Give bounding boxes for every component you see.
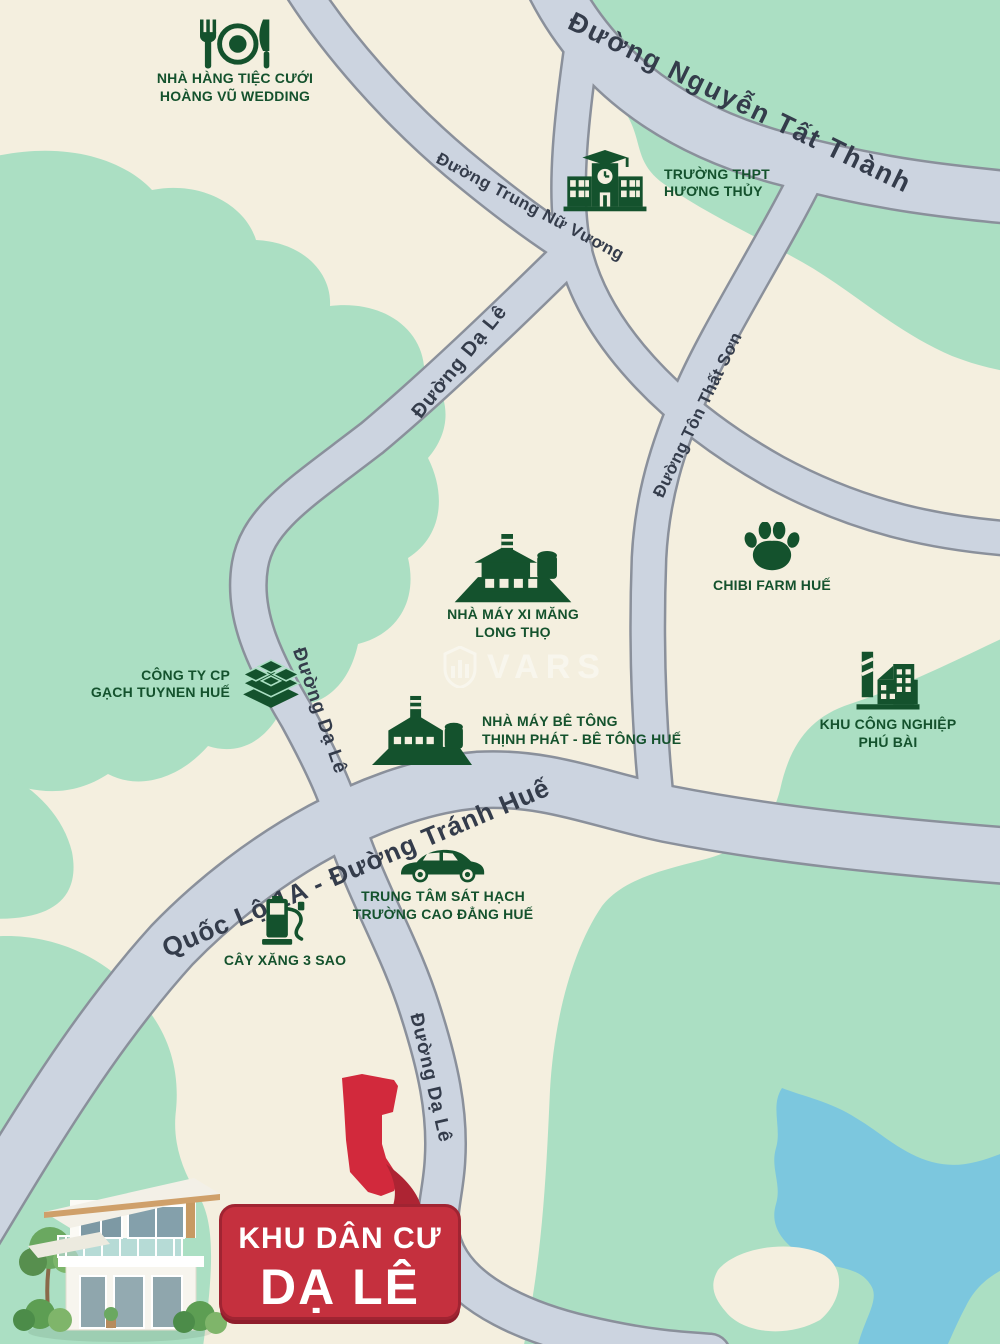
poi-label: CÂY XĂNG 3 SAO	[224, 952, 346, 970]
poi-label: CHIBI FARM HUẾ	[713, 577, 831, 595]
school-icon	[556, 148, 654, 218]
poi-label: NHÀ HÀNG TIỆC CƯỚI	[157, 70, 313, 88]
house-illustration	[8, 1150, 236, 1344]
bricks-icon	[240, 658, 302, 710]
poi-label: NHÀ MÁY XI MĂNG	[447, 606, 579, 624]
watermark: VARS	[443, 646, 607, 688]
poi-label: PHÚ BÀI	[820, 734, 957, 752]
restaurant-icon	[193, 18, 277, 70]
watermark-text: VARS	[487, 648, 607, 687]
poi-label: HƯƠNG THỦY	[664, 183, 770, 201]
poi-gach-tuynen-hue: CÔNG TY CP GẠCH TUYNEN HUẾ	[10, 658, 302, 710]
factory-icon	[454, 534, 572, 604]
poi-label: KHU CÔNG NGHIỆP	[820, 716, 957, 734]
poi-label: GẠCH TUYNEN HUẾ	[91, 684, 230, 702]
poi-thpt-huong-thuy: TRƯỜNG THPT HƯƠNG THỦY	[556, 148, 770, 218]
project-badge-name: DẠ LÊ	[222, 1258, 458, 1316]
poi-label: NHÀ MÁY BÊ TÔNG	[482, 713, 681, 731]
poi-hoang-vu-wedding: NHÀ HÀNG TIỆC CƯỚI HOÀNG VŨ WEDDING	[125, 18, 345, 105]
project-badge: KHU DÂN CƯ DẠ LÊ	[219, 1204, 461, 1320]
poi-xi-mang-long-tho: NHÀ MÁY XI MĂNG LONG THỌ	[403, 534, 623, 641]
paw-icon	[740, 522, 804, 574]
poi-label: LONG THỌ	[447, 624, 579, 642]
poi-label: CÔNG TY CP	[91, 667, 230, 685]
poi-trung-tam-sat-hach: TRUNG TÂM SÁT HẠCH TRƯỜNG CAO ĐẲNG HUẾ	[337, 843, 549, 923]
car-icon	[397, 843, 489, 885]
project-area-polygon	[342, 1074, 399, 1196]
poi-label: HOÀNG VŨ WEDDING	[157, 88, 313, 106]
vars-logo-icon	[443, 646, 477, 688]
poi-kcn-phu-bai: KHU CÔNG NGHIỆP PHÚ BÀI	[788, 650, 988, 751]
poi-be-tong-thinh-phat: NHÀ MÁY BÊ TÔNG THỊNH PHÁT - BÊ TÔNG HUẾ	[372, 694, 681, 767]
poi-label: THỊNH PHÁT - BÊ TÔNG HUẾ	[482, 731, 681, 749]
gas-pump-icon	[262, 896, 308, 949]
poi-chibi-farm-hue: CHIBI FARM HUẾ	[672, 522, 872, 595]
poi-label: TRƯỜNG THPT	[664, 166, 770, 184]
poi-cay-xang-3-sao: CÂY XĂNG 3 SAO	[205, 896, 365, 970]
project-badge-title: KHU DÂN CƯ	[222, 1222, 458, 1256]
factory-icon	[372, 694, 472, 767]
industrial-icon	[851, 650, 925, 713]
location-map: VARS Đường Nguyễn Tất Thành Đường Trung …	[0, 0, 1000, 1344]
poi-label: TRƯỜNG CAO ĐẲNG HUẾ	[353, 906, 534, 924]
poi-label: TRUNG TÂM SÁT HẠCH	[353, 888, 534, 906]
